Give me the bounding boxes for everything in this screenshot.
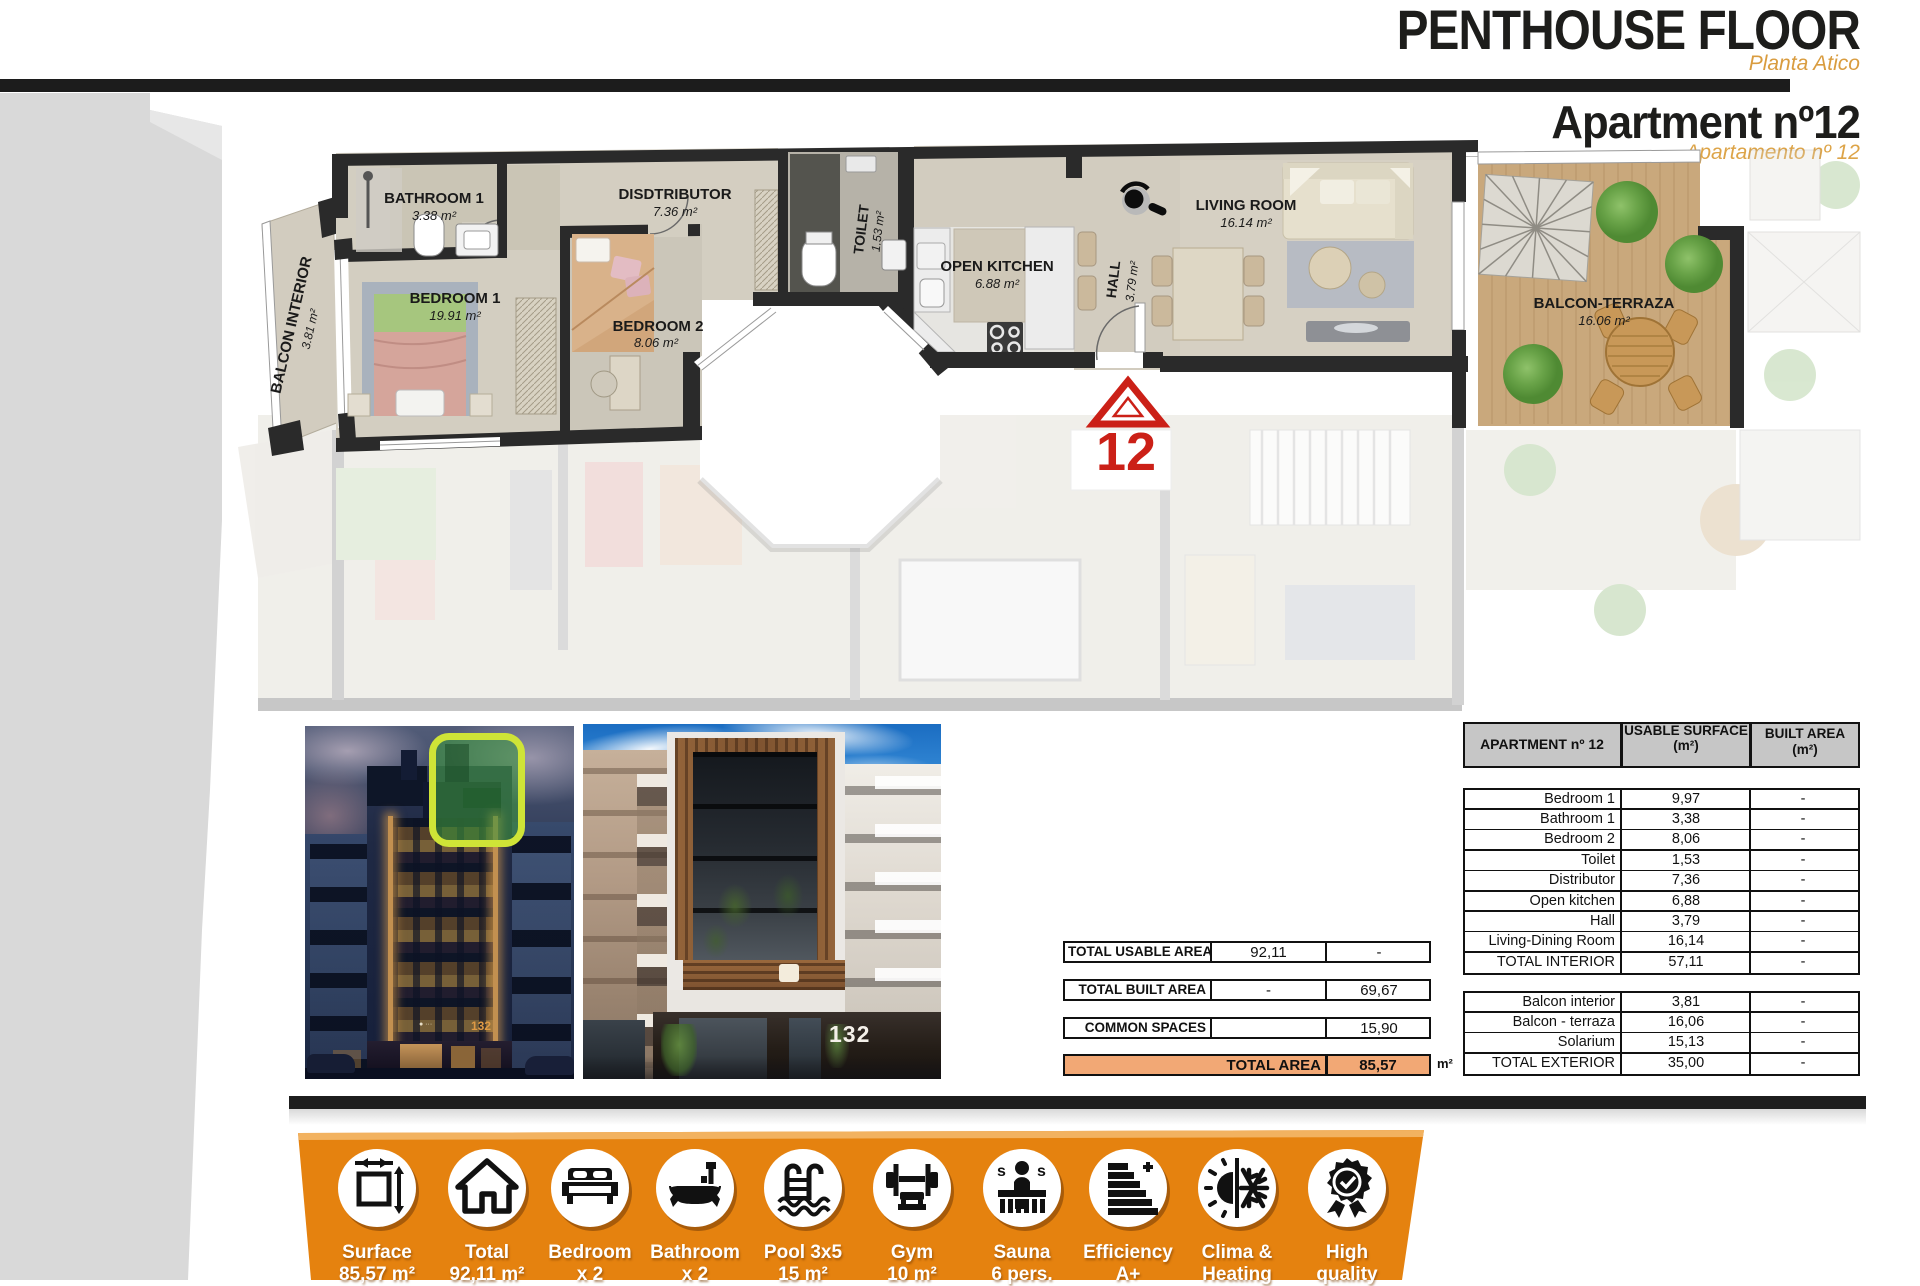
svg-text:LIVING ROOM: LIVING ROOM bbox=[1196, 197, 1297, 214]
svg-text:s: s bbox=[997, 1163, 1006, 1180]
svg-text:12: 12 bbox=[1096, 422, 1156, 482]
svg-text:OPEN KITCHEN: OPEN KITCHEN bbox=[940, 258, 1053, 275]
svg-text:BEDROOM 2: BEDROOM 2 bbox=[613, 318, 704, 335]
svg-text:8.06 m²: 8.06 m² bbox=[634, 335, 679, 350]
svg-text:BATHROOM 1: BATHROOM 1 bbox=[384, 190, 484, 207]
svg-text:DISDTRIBUTOR: DISDTRIBUTOR bbox=[618, 186, 731, 203]
svg-text:s: s bbox=[1037, 1163, 1046, 1180]
svg-text:16.14 m²: 16.14 m² bbox=[1220, 215, 1272, 230]
svg-text:16.06 m²: 16.06 m² bbox=[1578, 313, 1630, 328]
svg-text:BALCON-TERRAZA: BALCON-TERRAZA bbox=[1534, 295, 1675, 312]
svg-text:3.38 m²: 3.38 m² bbox=[412, 208, 457, 223]
svg-text:7.36 m²: 7.36 m² bbox=[653, 204, 698, 219]
svg-text:6.88 m²: 6.88 m² bbox=[975, 276, 1020, 291]
svg-text:19.91 m²: 19.91 m² bbox=[429, 308, 481, 323]
svg-text:BEDROOM 1: BEDROOM 1 bbox=[410, 290, 501, 307]
